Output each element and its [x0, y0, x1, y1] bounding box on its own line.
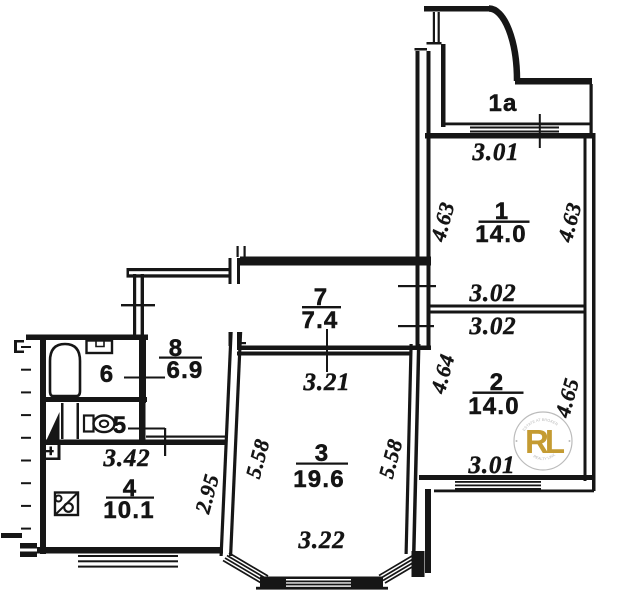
svg-text:3.22: 3.22 — [298, 527, 346, 554]
svg-text:RL: RL — [525, 423, 565, 460]
svg-text:3.42: 3.42 — [103, 445, 151, 472]
svg-text:3.01: 3.01 — [468, 452, 516, 479]
svg-text:3.01: 3.01 — [472, 139, 520, 166]
svg-text:19.6: 19.6 — [293, 466, 345, 493]
svg-text:7.4: 7.4 — [302, 307, 339, 334]
svg-text:14.0: 14.0 — [468, 393, 520, 420]
svg-text:5: 5 — [113, 412, 128, 439]
svg-text:3.21: 3.21 — [303, 369, 351, 396]
svg-text:10.1: 10.1 — [103, 497, 155, 524]
svg-text:1a: 1a — [488, 90, 517, 117]
svg-text:3.02: 3.02 — [469, 313, 517, 340]
svg-text:6: 6 — [100, 361, 115, 388]
svg-text:3.02: 3.02 — [469, 280, 517, 307]
svg-text:14.0: 14.0 — [475, 221, 527, 248]
svg-text:6.9: 6.9 — [167, 357, 204, 384]
